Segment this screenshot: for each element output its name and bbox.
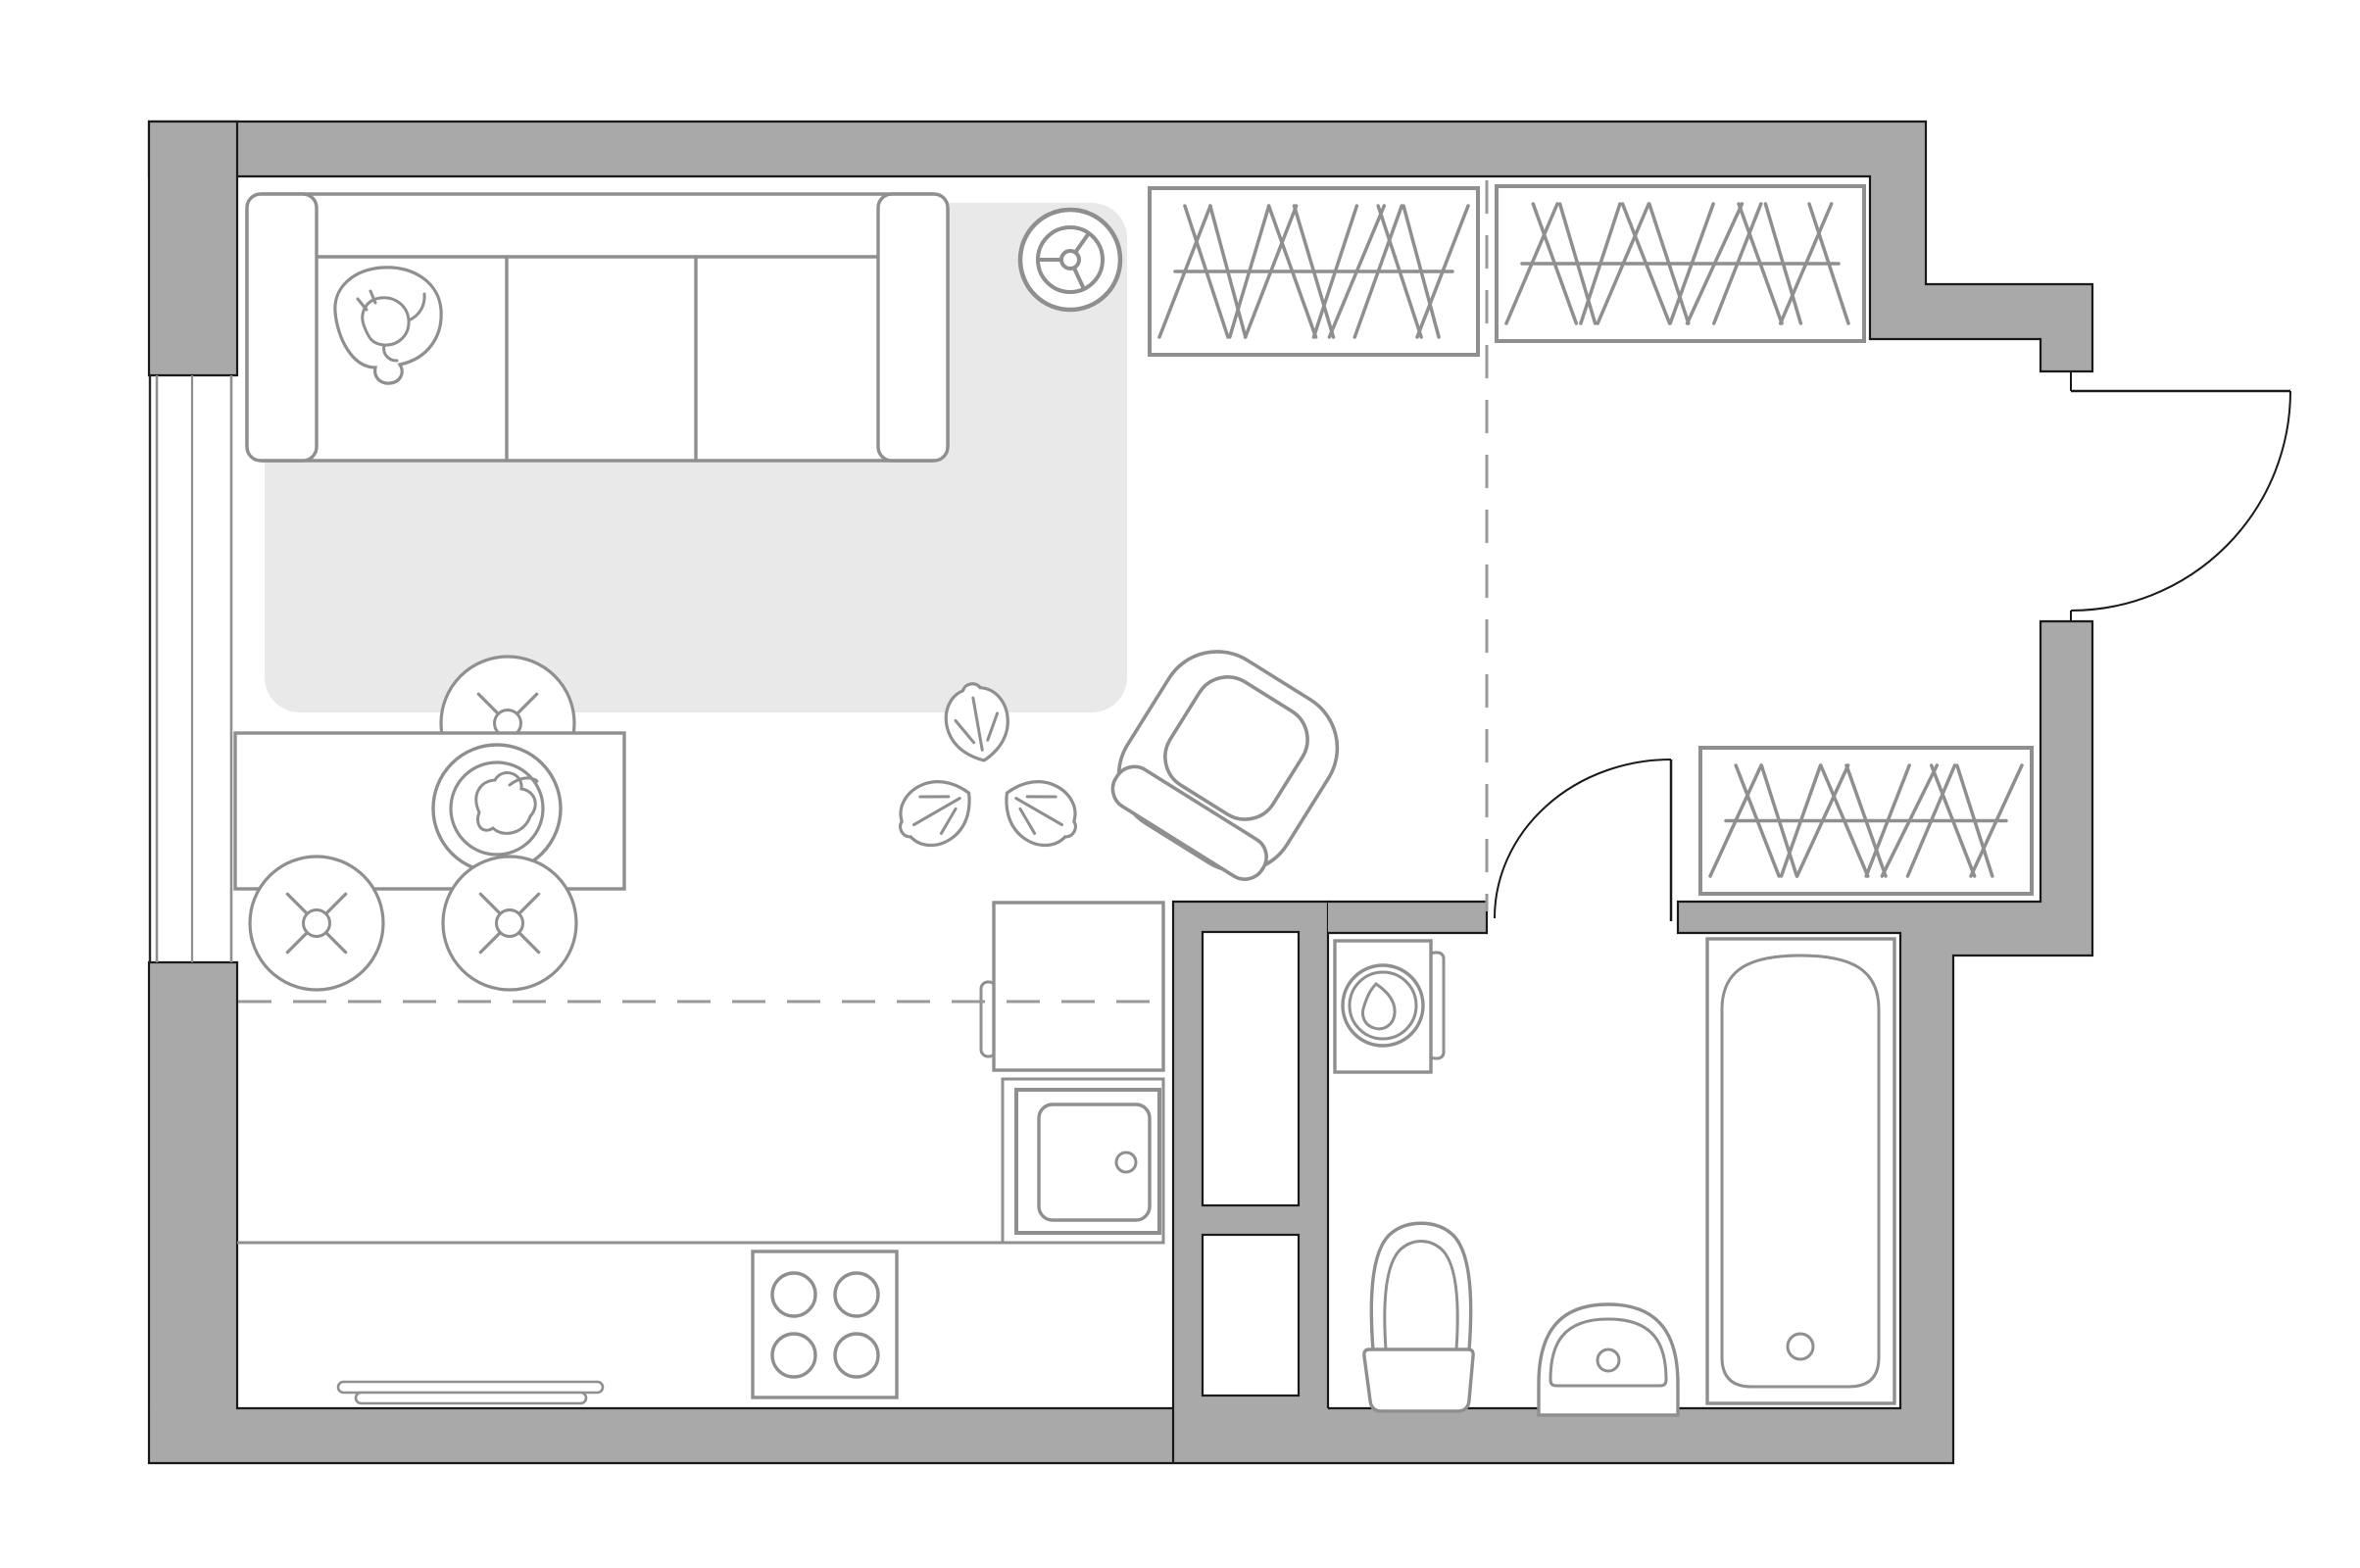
- stove-cooktop: [753, 1251, 897, 1397]
- shaft-niche-lower: [1203, 1235, 1299, 1396]
- floor-plan: [0, 0, 2360, 1568]
- ceiling-fan-vent: [1020, 210, 1120, 310]
- kitchen-tall-unit: [981, 903, 1163, 1070]
- bathroom-sink: [1539, 1304, 1678, 1415]
- washing-machine: [1335, 941, 1444, 1072]
- wall-left-upper: [149, 122, 237, 375]
- wardrobe-top-left: [1150, 188, 1478, 355]
- wall-bath-north-band: [1328, 902, 1487, 933]
- floor-plan-canvas: [0, 0, 2360, 1568]
- radiator-baseboard: [338, 1382, 603, 1403]
- kitchen-sink-unit: [1003, 1079, 1163, 1243]
- bathtub: [1707, 939, 1894, 1403]
- wardrobe-hallway: [1700, 748, 2032, 894]
- toilet: [1364, 1223, 1473, 1411]
- dining-chair-bottom-left: [250, 857, 383, 990]
- shaft-niche-upper: [1203, 932, 1299, 1205]
- table-bowl: [433, 745, 561, 872]
- wardrobe-top-right: [1497, 186, 1864, 341]
- dining-chair-bottom-right: [443, 857, 576, 990]
